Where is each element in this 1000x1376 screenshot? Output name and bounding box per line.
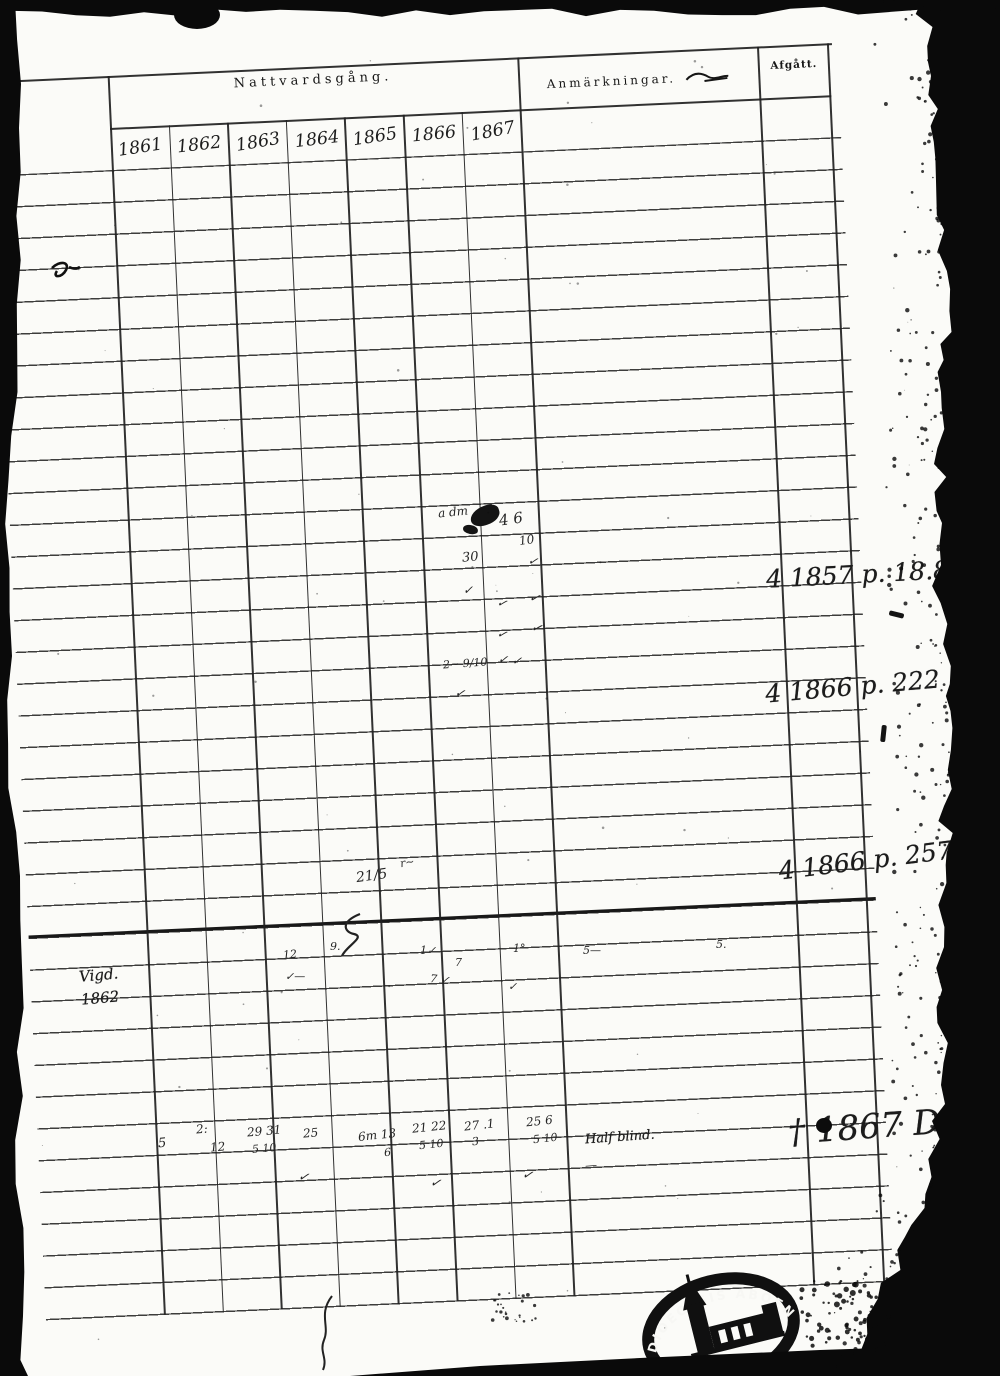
handwritten-mark: 3	[471, 1135, 479, 1149]
handwritten-mark: 7	[455, 956, 462, 969]
handwritten-mark: 12	[282, 947, 297, 961]
ink-curve-icon	[312, 1296, 342, 1374]
year-label: 1863	[226, 119, 291, 168]
handwritten-mark: 5 10	[532, 1131, 558, 1146]
vigd-line1: Vigd.	[78, 964, 119, 985]
margin-note-vigd-1862: Vigd. 1862	[78, 962, 121, 1012]
year-label: 1865	[344, 114, 408, 162]
ledger-table: Nattvardsgång. 1861186218631864186518661…	[0, 95, 896, 1376]
year-label: 1866	[403, 113, 465, 159]
column-header-afgatt: Afgått.	[758, 57, 830, 72]
ink-curl-icon	[336, 912, 370, 960]
handwritten-mark: 30	[461, 549, 479, 565]
handwritten-mark: 5 10	[418, 1137, 444, 1152]
vigd-line2: 1862	[80, 988, 120, 1009]
handwritten-mark: 1✓	[420, 944, 436, 957]
handwritten-mark: 5—	[583, 944, 601, 957]
handwritten-mark: 9.	[330, 940, 341, 953]
handwritten-mark: 2:	[195, 1122, 208, 1137]
ink-dash	[889, 610, 905, 618]
year-label: 1861	[108, 124, 172, 172]
handwritten-mark: ✓—	[285, 970, 305, 983]
handwritten-mark: 10	[518, 532, 535, 548]
handwritten-mark: 29 31	[246, 1123, 281, 1140]
handwritten-mark: 1°	[513, 942, 526, 955]
handwritten-mark: 12	[209, 1139, 225, 1154]
ink-dot	[816, 1118, 832, 1133]
handwritten-mark: —	[584, 1158, 597, 1173]
handwritten-mark: ✓ ✓	[497, 652, 522, 668]
handwritten-mark: r~	[399, 855, 416, 870]
year-label: 1862	[168, 123, 231, 170]
handwritten-mark: 5 10	[251, 1141, 277, 1156]
handwritten-mark: 25 6	[525, 1113, 553, 1130]
handwritten-mark: 5	[157, 1136, 167, 1152]
handwritten-mark: 6	[383, 1146, 391, 1160]
anmarkningar-label: Anmärkningar.	[546, 71, 676, 91]
handwritten-mark: ✓	[508, 980, 517, 993]
year-label: 1867	[461, 108, 526, 158]
column-header-anmarkningar: Anmärkningar.	[538, 67, 738, 91]
ink-dash	[880, 725, 887, 742]
ink-squiggle-icon	[682, 68, 731, 84]
diocese-stamp: DIOECESIS ABOENSIS	[630, 1268, 812, 1376]
year-label: 1864	[285, 117, 348, 164]
handwritten-mark: 7 ✓	[429, 972, 450, 987]
ink-scribble-icon	[46, 252, 82, 280]
handwritten-mark: 4 6	[498, 508, 524, 529]
handwritten-mark: 5.	[716, 938, 727, 951]
ruled-rows	[0, 137, 893, 1322]
handwritten-mark: ✓	[463, 583, 473, 597]
scanned-ledger-page: Nattvardsgång. 1861186218631864186518661…	[0, 0, 1000, 1376]
handwritten-mark: 25	[302, 1125, 318, 1140]
